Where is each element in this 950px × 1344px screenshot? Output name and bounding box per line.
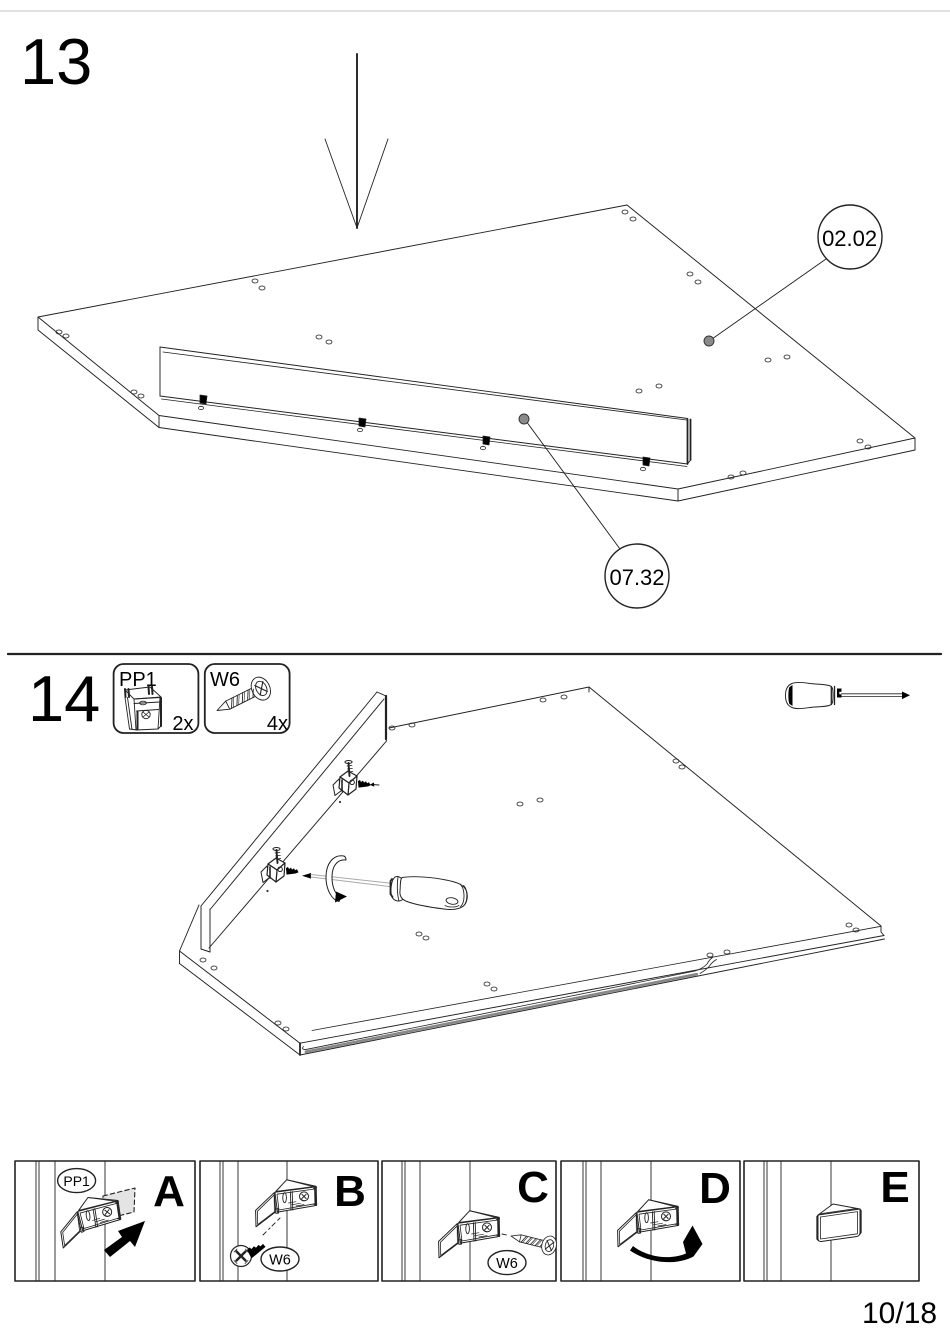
svg-text:B: B	[334, 1167, 366, 1216]
svg-text:13: 13	[20, 25, 92, 98]
svg-text:4x: 4x	[267, 713, 288, 735]
svg-text:2x: 2x	[172, 713, 193, 735]
svg-text:W6: W6	[496, 1256, 518, 1272]
svg-text:D: D	[699, 1164, 731, 1213]
svg-text:A: A	[153, 1167, 185, 1216]
svg-text:PP1: PP1	[63, 1173, 90, 1189]
svg-text:07.32: 07.32	[609, 565, 664, 590]
svg-text:E: E	[880, 1163, 909, 1212]
svg-text:W6: W6	[210, 669, 240, 691]
svg-text:14: 14	[28, 662, 100, 735]
svg-text:W6: W6	[269, 1253, 291, 1269]
svg-text:C: C	[517, 1163, 549, 1212]
svg-text:10/18: 10/18	[862, 1297, 937, 1330]
svg-text:02.02: 02.02	[822, 226, 877, 251]
